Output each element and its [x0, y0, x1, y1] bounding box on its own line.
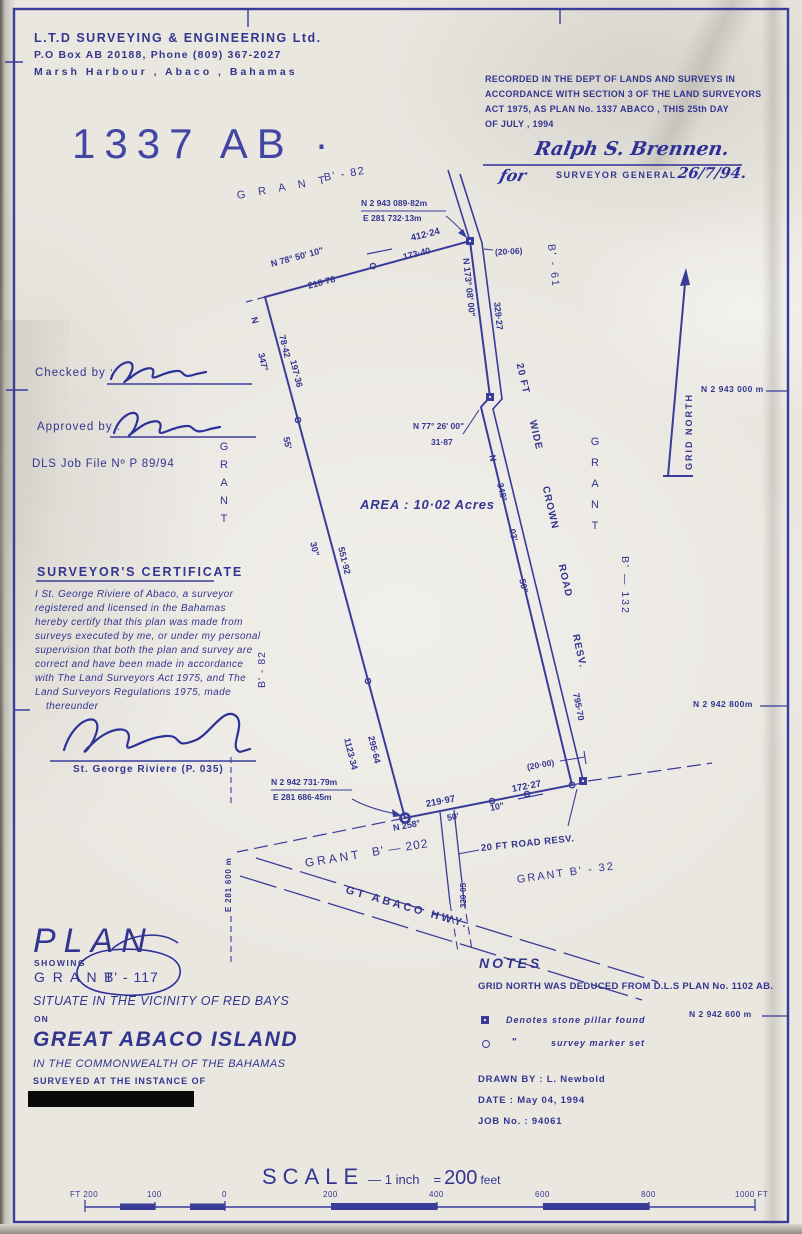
scale-tick-400: 400	[429, 1190, 444, 1199]
crown-road-east-line	[460, 174, 584, 784]
top-line-tick	[367, 249, 392, 254]
certificate-line-1: I St. George Riviere of Abaco, a surveyo…	[35, 589, 233, 600]
road-resv-label-dash	[458, 850, 479, 854]
grant-right-word: GRANT	[589, 436, 601, 541]
redaction-bar	[28, 1091, 194, 1107]
for-word: for	[498, 166, 529, 185]
certificate-line-2: registered and licensed in the Bahamas	[35, 603, 226, 614]
company-address: P.O Box AB 20188, Phone (809) 367-2027	[34, 49, 282, 61]
certificate-line-6: correct and have been made in accordance	[35, 659, 243, 670]
recording-line3: ACT 1975, AS PLAN No. 1337 ABACO , THIS …	[485, 104, 729, 114]
crown-road-west-extension	[448, 170, 470, 241]
on-label: ON	[34, 1014, 49, 1024]
certificate-line-8: Land Surveyors Regulations 1975, made	[35, 687, 231, 698]
date-line: DATE : May 04, 1994	[478, 1095, 585, 1106]
certificate-line-4: surveys executed by me, or under my pers…	[35, 631, 260, 642]
plan-word: PLAN	[33, 922, 154, 961]
survey-markers	[295, 263, 574, 803]
certificate-line-5: supervision that both the plan and surve…	[35, 645, 253, 656]
scale-tick-ft200: FT 200	[70, 1190, 98, 1199]
commonwealth-label: IN THE COMMONWEALTH OF THE BAHAMAS	[33, 1058, 286, 1070]
notes-grid-north: GRID NORTH WAS DEDUCED FROM D.L.S PLAN N…	[478, 981, 773, 992]
corner-d-easting: E 281 686·45m	[273, 792, 332, 802]
surveyor-general-title: SURVEYOR GENERAL	[556, 170, 677, 180]
job-number-line: JOB No. : 94061	[478, 1116, 562, 1127]
gap-top-2006: (20·06)	[495, 246, 523, 257]
grid-northing-942600: N 2 942 600 m	[689, 1009, 752, 1019]
certificate-signature	[64, 714, 250, 752]
certificate-name: St. George Riviere (P. 035)	[73, 764, 224, 775]
grid-north-arrowhead	[680, 268, 690, 286]
grant-word: G R A N T	[34, 969, 115, 985]
checked-signature	[111, 362, 206, 382]
top-line-extension-left	[246, 297, 265, 302]
scale-feet: feet	[480, 1173, 500, 1187]
certificate-line-3: hereby certify that this plan was made f…	[35, 617, 243, 628]
grant-right-number: B' — 132	[619, 556, 631, 615]
scale-tick-1000: 1000 FT	[735, 1190, 768, 1199]
notes-title: NOTES	[479, 955, 542, 971]
plan-number: 1337 AB ·	[72, 120, 337, 168]
grid-easting-281600: E 281 600 m	[224, 857, 233, 912]
scale-tick-800: 800	[641, 1190, 656, 1199]
scale-inch: — 1 inch	[368, 1172, 419, 1187]
grid-north-label: GRID NORTH	[684, 393, 694, 470]
coord-d-arrow	[352, 799, 397, 814]
bottom-line-extension-right	[572, 763, 712, 785]
area-label: AREA : 10·02 Acres	[360, 497, 495, 512]
grant-number: B' - 117	[104, 969, 159, 985]
drawn-by-line: DRAWN BY : L. Newbold	[478, 1074, 605, 1085]
grid-northing-943000: N 2 943 000 m	[701, 384, 764, 394]
coord-b-arrowhead	[458, 229, 467, 238]
certificate-line-9: thereunder	[46, 701, 98, 712]
scale-word: SCALE	[262, 1164, 364, 1190]
road-dist-32005: 320·05	[459, 883, 468, 908]
corner-b-northing: N 2 943 089·82m	[361, 198, 427, 208]
grant-left-word: GRANT	[218, 441, 230, 531]
legend-ditto: "	[512, 1037, 517, 1048]
surveyor-general-signature: Ralph S. Brennen.	[533, 138, 731, 160]
recording-line4: OF JULY , 1994	[485, 119, 554, 129]
corner-d-northing: N 2 942 731·79m	[271, 777, 337, 787]
company-name: L.T.D SURVEYING & ENGINEERING Ltd.	[34, 31, 322, 45]
recording-line2: ACCORDANCE WITH SECTION 3 OF THE LAND SU…	[485, 89, 761, 99]
certificate-title: SURVEYOR'S CERTIFICATE	[37, 565, 243, 579]
company-location: Marsh Harbour , Abaco , Bahamas	[34, 66, 298, 78]
recording-date: 26/7/94.	[677, 164, 748, 182]
legend-pillar-text: Denotes stone pillar found	[506, 1015, 646, 1025]
road-resv-leader	[568, 789, 577, 826]
corner-b-easting: E 281 732·13m	[363, 213, 422, 223]
jog-dist-3187: 31·87	[431, 437, 453, 447]
gap-top-dash	[484, 249, 493, 250]
legend-marker-text: survey marker set	[551, 1038, 645, 1048]
dls-job-file: DLS Job File Nº P 89/94	[32, 458, 175, 470]
showing-label: SHOWING	[34, 958, 86, 968]
checked-by-label: Checked by :	[35, 367, 114, 379]
grant-left-number: B' - 82	[256, 651, 268, 688]
scale-tick-100: 100	[147, 1190, 162, 1199]
grid-tick-lines	[760, 391, 787, 1016]
surveyed-label: SURVEYED AT THE INSTANCE OF	[33, 1076, 206, 1086]
scale-tick-200: 200	[323, 1190, 338, 1199]
scale-title: SCALE — 1 inch = 200 feet	[262, 1164, 500, 1190]
jog-leader	[463, 410, 479, 434]
jog-bearing-7726: N 77° 26' 00"	[413, 421, 464, 431]
parcel-boundary	[265, 241, 572, 818]
stone-pillar-legend-icon	[481, 1016, 489, 1024]
scale-tick-600: 600	[535, 1190, 550, 1199]
grid-northing-942800: N 2 942 800m	[693, 699, 753, 709]
scale-200: 200	[444, 1167, 477, 1190]
scale-bar	[85, 1199, 755, 1212]
survey-plan-sheet: L.T.D SURVEYING & ENGINEERING Ltd. P.O B…	[0, 0, 802, 1234]
approved-by-label: Approved by :	[37, 421, 121, 433]
scale-tick-0: 0	[222, 1190, 227, 1199]
island-title: GREAT ABACO ISLAND	[33, 1028, 298, 1052]
survey-marker-legend-icon	[482, 1040, 490, 1048]
recording-line1: RECORDED IN THE DEPT OF LANDS AND SURVEY…	[485, 74, 735, 84]
approved-signature	[114, 413, 220, 436]
certificate-line-7: with The Land Surveyors Act 1975, and Th…	[35, 673, 246, 684]
scale-equals: =	[433, 1172, 441, 1187]
situate-label: SITUATE IN THE VICINITY OF RED BAYS	[33, 994, 289, 1008]
